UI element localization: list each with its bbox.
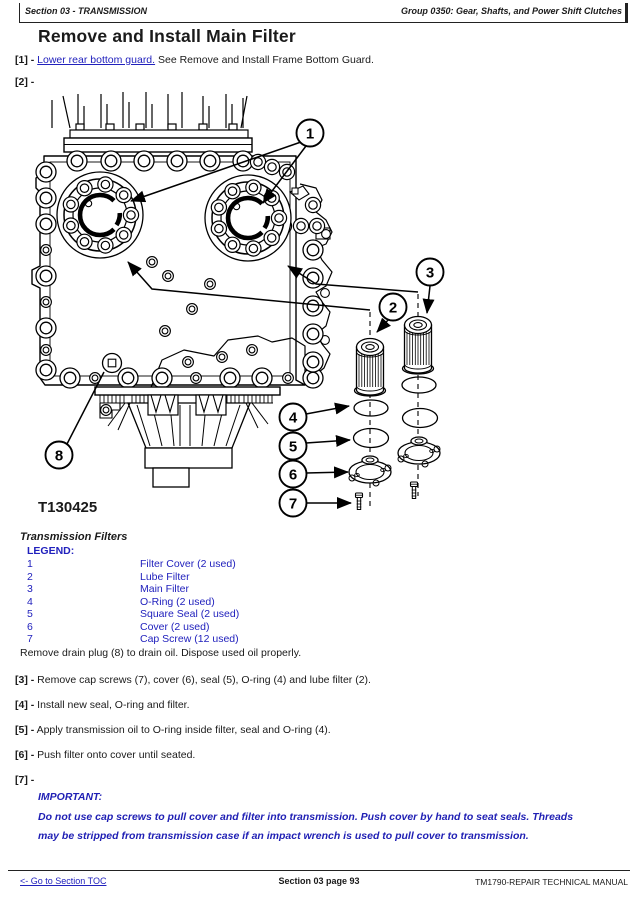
o-ring-left (354, 400, 388, 416)
figure-title: Transmission Filters (20, 531, 127, 543)
lower-rear-bottom-guard-link[interactable]: Lower rear bottom guard. (37, 54, 155, 66)
step-2-label: [2] - (15, 76, 34, 88)
cover-left (349, 456, 391, 486)
legend-item: 6Cover (2 used) (27, 621, 209, 633)
transmission-case (32, 151, 332, 390)
cap-screw-right (411, 482, 418, 499)
legend-heading: LEGEND: (27, 545, 74, 557)
important-text: Do not use cap screws to pull cover and … (38, 808, 583, 845)
step-5-text: Apply transmission oil to O-ring inside … (37, 724, 331, 736)
page-title: Remove and Install Main Filter (38, 26, 296, 47)
step-6-label: [6] - (15, 749, 34, 761)
legend-item: 1Filter Cover (2 used) (27, 558, 236, 570)
o-ring-right (402, 377, 436, 393)
legend-item: 2Lube Filter (27, 571, 190, 583)
svg-text:3: 3 (426, 265, 434, 282)
header-right-tick (625, 3, 628, 22)
step-1: [1] - Lower rear bottom guard. See Remov… (15, 54, 374, 66)
svg-text:8: 8 (55, 448, 63, 465)
main-filter (403, 317, 434, 375)
legend-item: 3Main Filter (27, 583, 189, 595)
transmission-filters-figure: 1 2 3 4 5 (0, 88, 638, 518)
step-2: [2] - (15, 76, 34, 88)
step-7-label: [7] - (15, 774, 34, 786)
step-3: [3] - Remove cap screws (7), cover (6), … (15, 674, 371, 686)
step-5-label: [5] - (15, 724, 34, 736)
legend-item: 7Cap Screw (12 used) (27, 633, 239, 645)
callout-5: 5 (280, 433, 351, 460)
header-left-tick (19, 3, 20, 22)
differential-housing (95, 387, 280, 487)
callout-6: 6 (280, 461, 349, 488)
manual-page: Section 03 - TRANSMISSION Group 0350: Ge… (0, 0, 638, 904)
figure-caption: T130425 (38, 499, 97, 516)
important-heading: IMPORTANT: (38, 791, 102, 803)
callout-4: 4 (280, 404, 350, 431)
svg-text:4: 4 (289, 410, 298, 427)
header-rule (19, 22, 628, 23)
legend-item: 5Square Seal (2 used) (27, 608, 239, 620)
step-6: [6] - Push filter onto cover until seate… (15, 749, 195, 761)
step-6-text: Push filter onto cover until seated. (37, 749, 195, 761)
lube-filter (355, 339, 386, 397)
svg-text:1: 1 (306, 126, 314, 143)
step-5: [5] - Apply transmission oil to O-ring i… (15, 724, 331, 736)
square-seal-right (403, 409, 438, 428)
cooler-tubes (52, 92, 247, 130)
callout-7: 7 (280, 490, 352, 517)
header-section: Section 03 - TRANSMISSION (25, 6, 147, 16)
step-3-label: [3] - (15, 674, 34, 686)
step-4-label: [4] - (15, 699, 34, 711)
callout-3: 3 (417, 259, 444, 314)
step-4: [4] - Install new seal, O-ring and filte… (15, 699, 190, 711)
footer-rule (8, 870, 630, 871)
svg-text:2: 2 (389, 300, 397, 317)
cover-right (398, 437, 440, 467)
drain-plug (103, 354, 122, 373)
svg-text:6: 6 (289, 467, 297, 484)
step-1-label: [1] - (15, 54, 34, 66)
header-group: Group 0350: Gear, Shafts, and Power Shif… (401, 6, 622, 16)
svg-text:7: 7 (289, 496, 297, 513)
step-4-text: Install new seal, O-ring and filter. (37, 699, 189, 711)
legend-item: 4O-Ring (2 used) (27, 596, 215, 608)
legend-note: Remove drain plug (8) to drain oil. Disp… (20, 647, 301, 659)
step-3-text: Remove cap screws (7), cover (6), seal (… (37, 674, 371, 686)
step-7: [7] - (15, 774, 34, 786)
left-filter-cover (57, 172, 143, 258)
svg-text:5: 5 (289, 439, 297, 456)
manifold-bar (64, 130, 252, 152)
cap-screw-left (356, 493, 363, 510)
step-1-text: See Remove and Install Frame Bottom Guar… (158, 54, 374, 66)
right-filter-cover (205, 175, 291, 261)
callout-2: 2 (377, 294, 407, 333)
square-seal-left (354, 429, 389, 448)
footer-manual-name: TM1790-REPAIR TECHNICAL MANUAL (475, 877, 628, 887)
